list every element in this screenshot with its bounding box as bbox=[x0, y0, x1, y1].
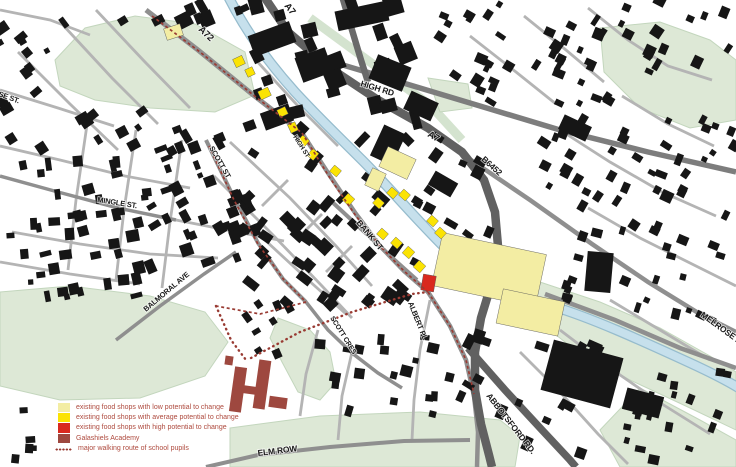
building bbox=[247, 148, 259, 159]
building bbox=[90, 251, 102, 260]
building bbox=[254, 346, 263, 355]
building bbox=[43, 47, 50, 54]
building bbox=[48, 217, 60, 226]
legend-swatch-average bbox=[58, 413, 70, 422]
building-large bbox=[248, 21, 297, 57]
building bbox=[19, 407, 27, 413]
building bbox=[721, 210, 731, 221]
building bbox=[590, 93, 602, 103]
building bbox=[372, 23, 388, 42]
building bbox=[554, 99, 565, 108]
building bbox=[11, 454, 20, 464]
legend-swatch-route bbox=[55, 447, 72, 451]
building bbox=[64, 228, 74, 241]
building bbox=[542, 416, 552, 425]
legend-item-average: existing food shops with average potenti… bbox=[58, 412, 239, 422]
building bbox=[193, 160, 201, 170]
building bbox=[652, 275, 660, 285]
building bbox=[577, 78, 585, 86]
building bbox=[620, 181, 631, 194]
building bbox=[482, 9, 494, 21]
building bbox=[77, 225, 90, 237]
building bbox=[581, 187, 591, 197]
building bbox=[607, 146, 617, 156]
building bbox=[354, 131, 371, 148]
building bbox=[431, 391, 438, 401]
building bbox=[428, 147, 444, 164]
legend-item-route: major walking route of school pupils bbox=[58, 444, 239, 454]
building bbox=[574, 446, 588, 460]
legend-item-academy: Galashiels Academy bbox=[58, 433, 239, 443]
building bbox=[707, 240, 720, 251]
building bbox=[565, 20, 577, 31]
building bbox=[718, 6, 731, 20]
building bbox=[118, 274, 130, 286]
building bbox=[354, 368, 366, 380]
building bbox=[576, 199, 588, 212]
building bbox=[676, 234, 689, 246]
building bbox=[300, 257, 316, 273]
building bbox=[132, 216, 144, 229]
building bbox=[81, 183, 95, 196]
building bbox=[45, 157, 52, 171]
building bbox=[592, 190, 604, 203]
building bbox=[605, 170, 617, 183]
building bbox=[591, 227, 604, 238]
legend: existing food shops with low potential t… bbox=[58, 402, 239, 454]
building bbox=[590, 14, 601, 27]
building bbox=[685, 14, 695, 23]
legend-swatch-low bbox=[58, 403, 70, 412]
building bbox=[463, 9, 476, 21]
building bbox=[621, 3, 631, 13]
building bbox=[164, 164, 172, 173]
building bbox=[142, 188, 152, 197]
building bbox=[449, 69, 462, 81]
building bbox=[59, 249, 73, 260]
building bbox=[5, 132, 18, 145]
building bbox=[247, 0, 265, 15]
legend-label-route: major walking route of school pupils bbox=[78, 445, 189, 452]
park-west bbox=[0, 286, 228, 400]
building bbox=[242, 119, 256, 132]
building bbox=[455, 390, 466, 403]
building bbox=[197, 172, 204, 179]
building bbox=[537, 136, 552, 150]
building bbox=[6, 233, 14, 239]
building bbox=[443, 217, 458, 230]
legend-item-high: existing food shops with high potential … bbox=[58, 423, 239, 433]
building bbox=[643, 296, 651, 304]
building bbox=[679, 273, 686, 281]
building bbox=[300, 22, 318, 39]
building bbox=[37, 169, 45, 177]
building bbox=[728, 139, 736, 153]
building bbox=[330, 214, 343, 227]
park-northeast bbox=[600, 22, 736, 128]
building bbox=[433, 30, 447, 43]
building bbox=[496, 0, 504, 8]
legend-label-low: existing food shops with low potential t… bbox=[76, 404, 224, 411]
building bbox=[126, 138, 141, 152]
building bbox=[242, 275, 260, 292]
building bbox=[564, 148, 576, 161]
building bbox=[253, 299, 263, 309]
building bbox=[634, 302, 642, 313]
building bbox=[470, 73, 485, 89]
building bbox=[709, 149, 717, 157]
building bbox=[108, 238, 120, 249]
building bbox=[48, 262, 60, 275]
building bbox=[573, 253, 584, 262]
building bbox=[176, 196, 190, 208]
building bbox=[148, 219, 162, 231]
building bbox=[54, 189, 61, 200]
building bbox=[531, 59, 542, 71]
building bbox=[146, 202, 157, 211]
building bbox=[329, 371, 341, 382]
map-canvas: A72A7HIGH RDA7B6452SE ST.MINGLE ST.SCOTT… bbox=[0, 0, 736, 467]
galashiels-food-shops-map: A72A7HIGH RDA7B6452SE ST.MINGLE ST.SCOTT… bbox=[0, 0, 736, 467]
street-label-scott-st: SCOTT ST bbox=[207, 145, 233, 181]
building bbox=[19, 160, 28, 170]
academy-block bbox=[253, 359, 272, 409]
building bbox=[654, 169, 668, 180]
legend-swatch-high bbox=[58, 423, 70, 432]
building bbox=[25, 444, 34, 454]
shop-marker-high bbox=[421, 274, 437, 292]
building bbox=[314, 339, 325, 350]
building bbox=[160, 186, 172, 195]
building bbox=[28, 279, 34, 285]
building bbox=[652, 0, 667, 8]
legend-label-average: existing food shops with average potenti… bbox=[76, 414, 239, 421]
building bbox=[631, 152, 643, 163]
building bbox=[700, 11, 708, 21]
building bbox=[0, 39, 4, 47]
building bbox=[571, 173, 584, 187]
building bbox=[660, 140, 673, 151]
building bbox=[154, 144, 168, 154]
building bbox=[443, 19, 452, 28]
building bbox=[619, 275, 631, 287]
road-mingle-st bbox=[0, 176, 176, 220]
building bbox=[96, 210, 107, 218]
building bbox=[30, 218, 37, 230]
building bbox=[534, 341, 549, 353]
building bbox=[543, 26, 556, 38]
building bbox=[319, 216, 333, 230]
building bbox=[25, 436, 35, 443]
building bbox=[576, 46, 583, 54]
building bbox=[426, 342, 439, 355]
building bbox=[187, 140, 201, 155]
building bbox=[726, 126, 736, 137]
legend-swatch-academy bbox=[58, 434, 70, 443]
building bbox=[20, 249, 29, 260]
building bbox=[0, 20, 10, 36]
street-label-melrose-rd: MELROSE RD bbox=[699, 310, 736, 350]
building bbox=[439, 11, 450, 20]
building bbox=[390, 397, 399, 405]
academy-block bbox=[224, 355, 233, 365]
building bbox=[422, 201, 436, 215]
building bbox=[495, 31, 506, 41]
building bbox=[377, 334, 385, 345]
building bbox=[715, 251, 725, 260]
academy-block bbox=[268, 396, 287, 409]
building bbox=[30, 86, 43, 98]
building bbox=[390, 371, 398, 380]
building bbox=[36, 271, 46, 278]
building bbox=[666, 252, 676, 260]
building bbox=[715, 368, 725, 377]
building bbox=[545, 182, 553, 190]
building bbox=[444, 372, 454, 383]
building bbox=[399, 364, 413, 378]
building-large bbox=[584, 251, 613, 293]
building bbox=[670, 381, 679, 390]
building bbox=[670, 308, 681, 321]
legend-item-low: existing food shops with low potential t… bbox=[58, 402, 239, 412]
building bbox=[555, 53, 567, 65]
building bbox=[125, 229, 140, 243]
legend-label-academy: Galashiels Academy bbox=[76, 435, 139, 442]
building bbox=[539, 159, 552, 172]
building bbox=[360, 246, 377, 263]
legend-label-high: existing food shops with high potential … bbox=[76, 424, 227, 431]
building bbox=[611, 195, 622, 207]
building bbox=[39, 250, 52, 258]
building bbox=[57, 287, 69, 297]
park-northwest bbox=[55, 16, 255, 112]
building bbox=[251, 327, 261, 336]
building bbox=[680, 168, 691, 180]
building bbox=[380, 345, 389, 354]
building bbox=[576, 99, 583, 107]
building bbox=[627, 218, 640, 231]
building bbox=[115, 125, 129, 139]
building bbox=[72, 155, 83, 167]
